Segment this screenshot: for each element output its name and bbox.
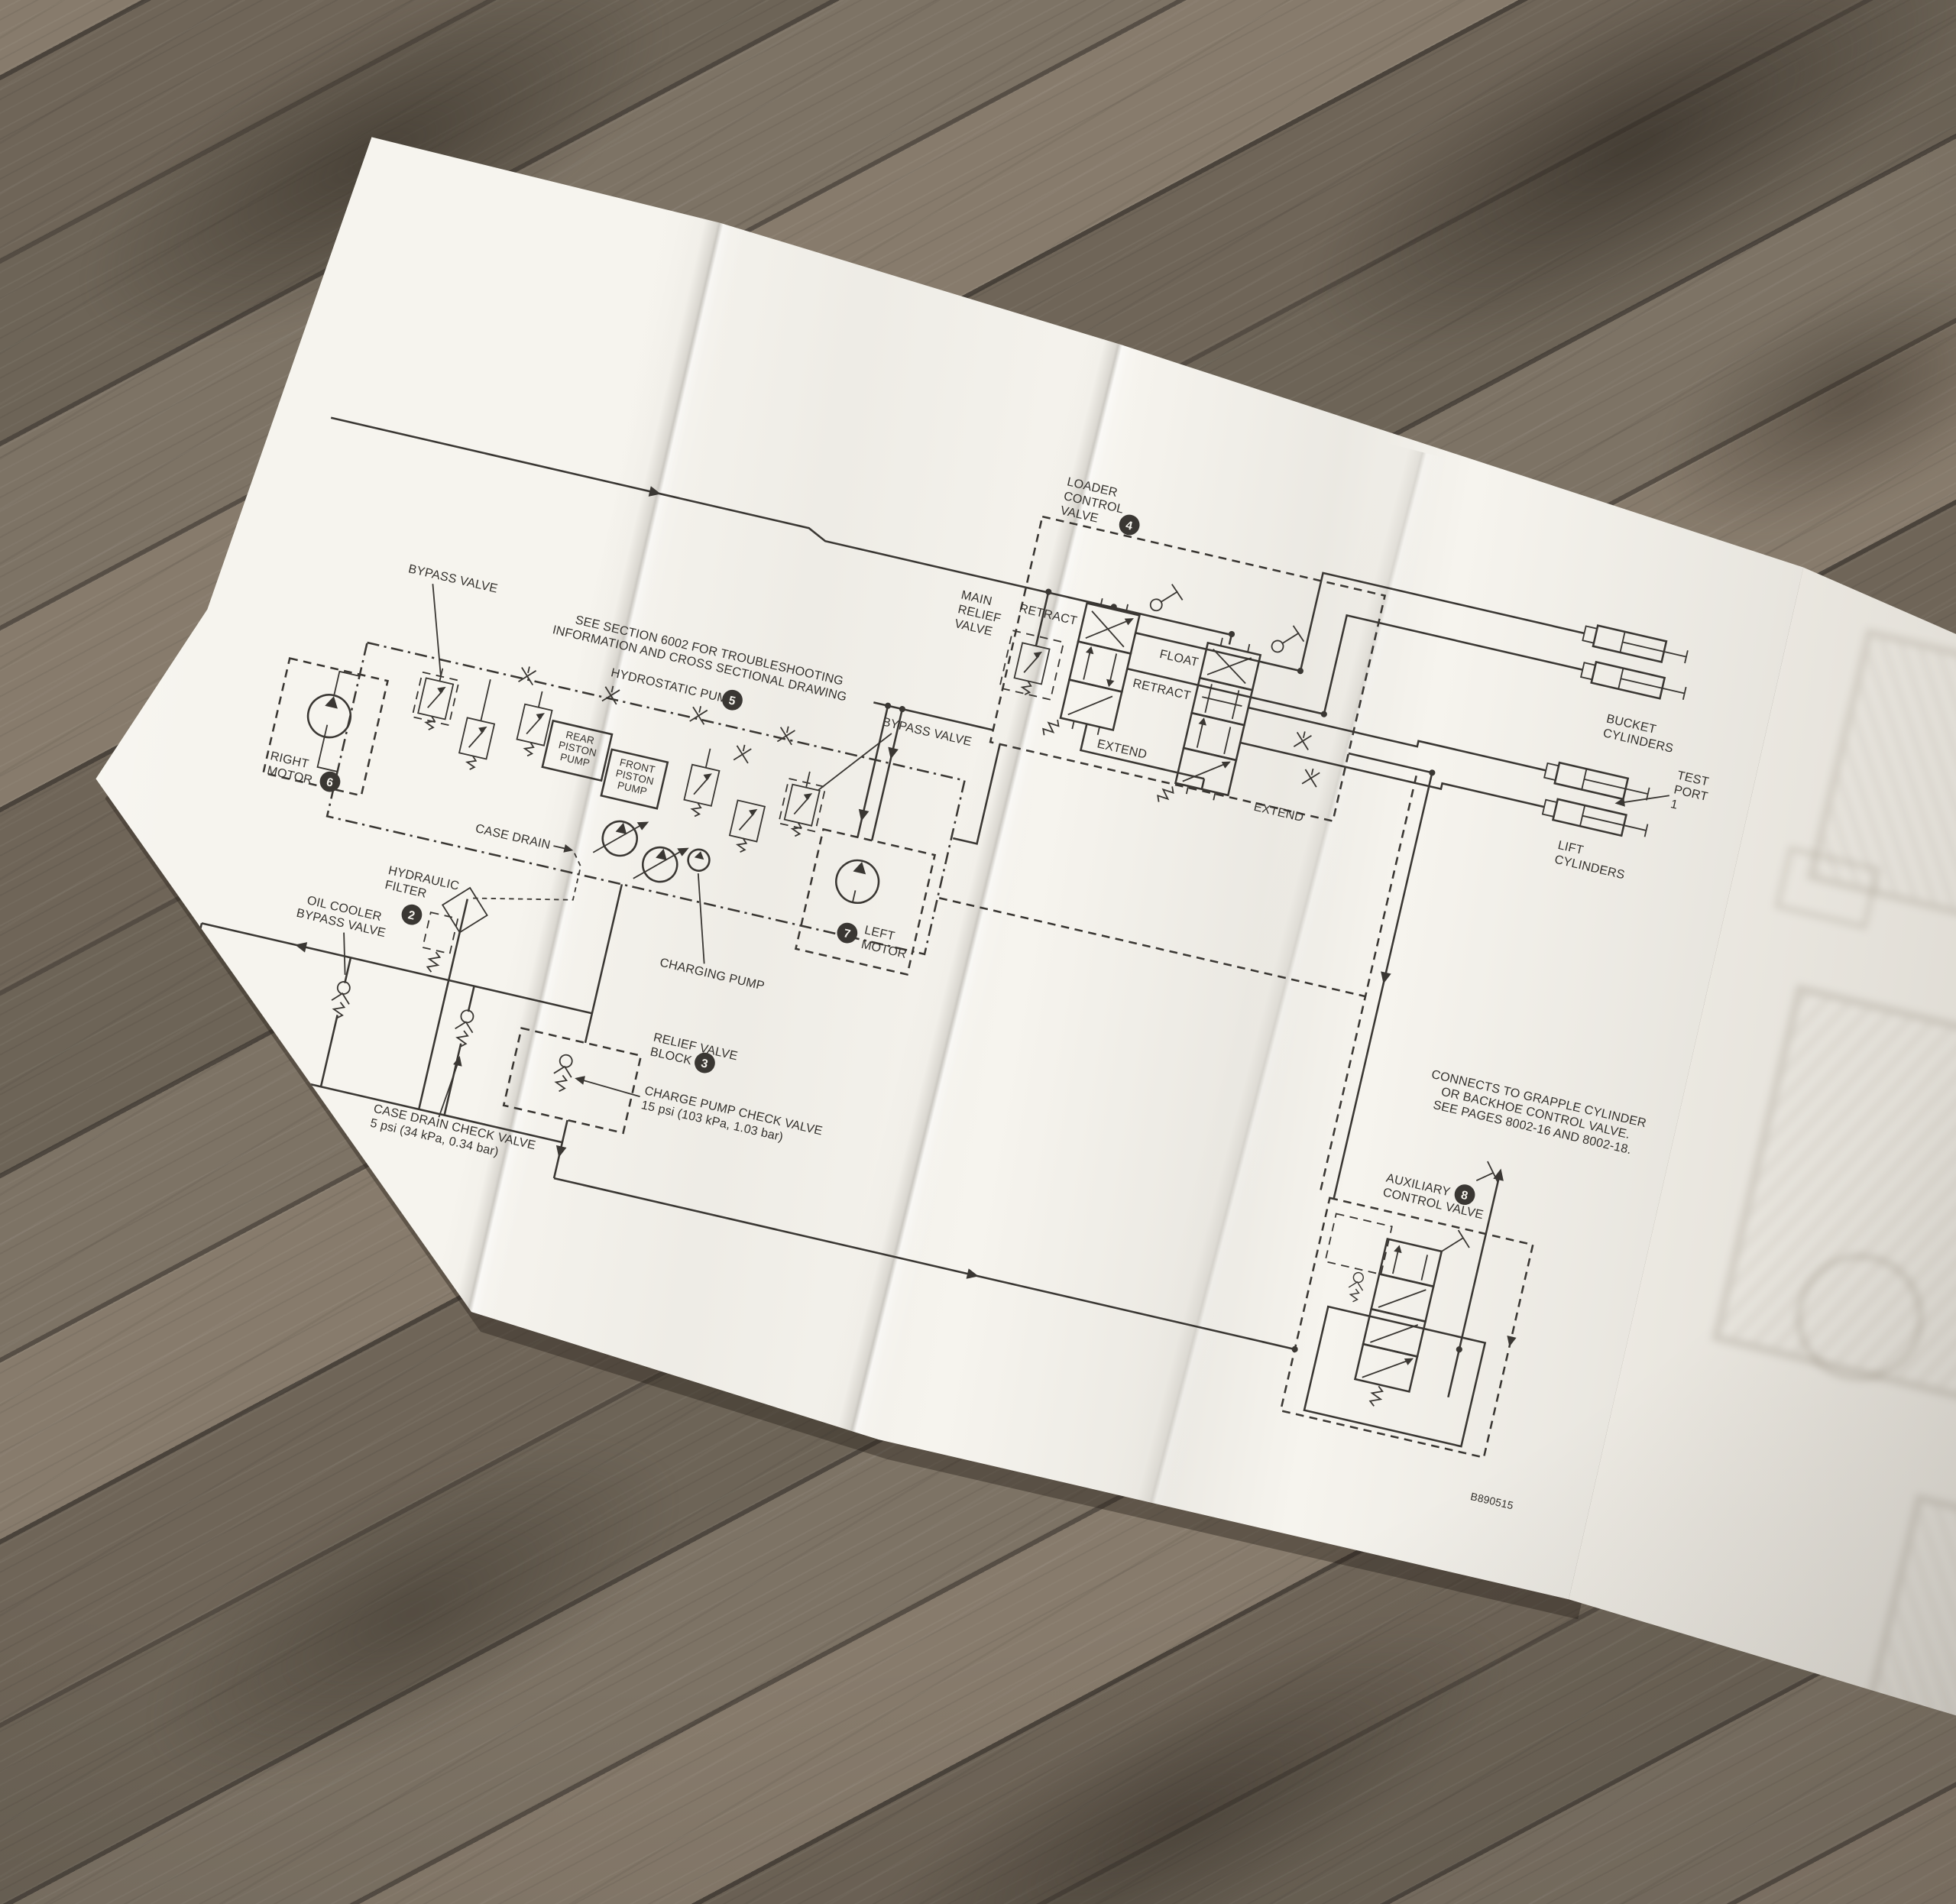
left-motor-symbol	[832, 856, 883, 908]
label-extend-bucket: EXTEND	[1096, 737, 1148, 761]
label-retract-lift: RETRACT	[1132, 676, 1192, 703]
lift-cylinder-symbol	[1542, 797, 1649, 841]
auxiliary-control-valve-group: CONNECTS TO GRAPPLE CYLINDER OR BACKHOE …	[1281, 1051, 1647, 1476]
rear-pump-symbol	[593, 811, 649, 863]
label-lift-cylinders-2: CYLINDERS	[1553, 853, 1626, 882]
right-motor-group: RIGHT MOTOR 6	[262, 659, 387, 799]
front-piston-pump-box: FRONT PISTON PUMP	[601, 750, 668, 808]
aux-feed-lines	[1214, 750, 1438, 1355]
main-relief-valve-symbol	[1011, 643, 1049, 698]
label-charging-pump: CHARGING PUMP	[659, 956, 766, 993]
bucket-spool-valve: RETRACT EXTEND	[992, 552, 1185, 761]
photo-scene: SEE SECTION 6002 FOR TROUBLESHOOTING INF…	[0, 0, 1956, 1904]
charging-pump-symbol	[686, 847, 711, 873]
cylinder-lines	[1117, 535, 1591, 814]
charge-pump-check-valve-symbol	[550, 1053, 576, 1093]
label-retract-bucket: RETRACT	[1018, 601, 1078, 628]
front-pump-symbol	[633, 837, 689, 889]
rear-piston-pump-box: REAR PISTON PUMP	[542, 720, 612, 780]
artifact-code: B890515	[1469, 1490, 1514, 1511]
bucket-cylinder-symbol	[1580, 659, 1687, 704]
label-bypass-valve-left: BYPASS VALVE	[407, 562, 499, 595]
callout-7-badge: 7	[835, 921, 860, 945]
bucket-cylinder-symbol	[1582, 623, 1689, 667]
callout-4-badge: 4	[1117, 513, 1142, 537]
label-float-lift: FLOAT	[1158, 647, 1200, 669]
left-motor-group: 7 LEFT MOTOR BYPASS VALVE	[782, 704, 973, 977]
lift-cylinders-group: LIFT CYLINDERS TEST PORT 1	[1525, 740, 1712, 896]
label-case-drain: CASE DRAIN	[474, 821, 552, 852]
label-extend-lift: EXTEND	[1252, 800, 1305, 824]
relief-valve-block-group: RELIEF VALVE BLOCK 3 CHARGE PUMP CHECK V…	[489, 869, 1362, 1355]
oil-cooler-bypass-valve-symbol	[328, 980, 354, 1021]
case-drain-check-valve-symbol	[452, 1009, 478, 1049]
label-test-port-3: 1	[1669, 797, 1679, 812]
lift-cylinder-symbol	[1543, 760, 1650, 805]
bucket-cylinders-group: BUCKET CYLINDERS	[1562, 623, 1696, 756]
callout-2-badge: 2	[400, 902, 424, 927]
